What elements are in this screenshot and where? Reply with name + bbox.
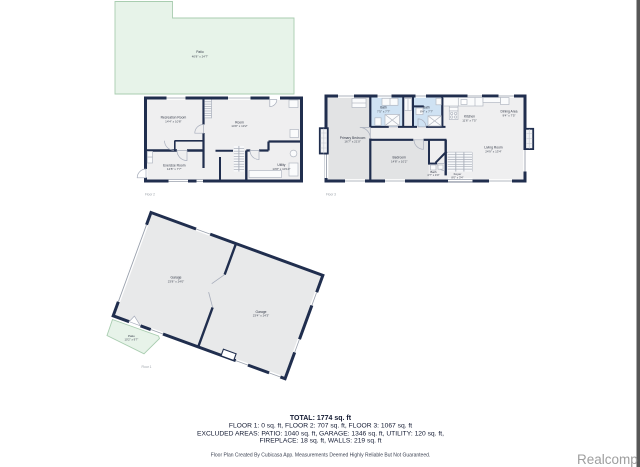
svg-text:23'4" x 24'3": 23'4" x 24'3" <box>253 314 269 318</box>
svg-text:4'7" x 4'0": 4'7" x 4'0" <box>427 173 439 177</box>
svg-text:EXCLUDED AREAS: PATIO: 1040 sq: EXCLUDED AREAS: PATIO: 1040 sq. ft, GARA… <box>197 430 444 437</box>
svg-text:13'8" x 10'10": 13'8" x 10'10" <box>272 167 290 171</box>
svg-text:Floor 3: Floor 3 <box>326 192 336 196</box>
svg-text:FIREPLACE: 18 sq. ft, WALLS: 2: FIREPLACE: 18 sq. ft, WALLS: 219 sq. ft <box>259 438 381 445</box>
svg-text:24'9" x 13'4": 24'9" x 13'4" <box>485 149 501 153</box>
svg-text:8'4" x 7'7": 8'4" x 7'7" <box>420 109 433 113</box>
svg-text:40'8" x 24'7": 40'8" x 24'7" <box>192 54 208 58</box>
svg-text:11'6" x 7'5": 11'6" x 7'5" <box>462 118 477 122</box>
svg-text:23'8" x 24'0": 23'8" x 24'0" <box>168 279 184 283</box>
svg-text:Floor 2: Floor 2 <box>145 192 155 196</box>
svg-text:Realcomp: Realcomp <box>577 452 638 467</box>
svg-text:10'2" x 9'7": 10'2" x 9'7" <box>125 337 139 341</box>
svg-text:FLOOR 1: 0 sq. ft, FLOOR 2: 70: FLOOR 1: 0 sq. ft, FLOOR 2: 707 sq. ft, … <box>229 423 412 430</box>
svg-text:TOTAL: 1774 sq. ft: TOTAL: 1774 sq. ft <box>290 415 352 422</box>
svg-text:14'8" x 7'7": 14'8" x 7'7" <box>167 167 182 171</box>
svg-text:14'8" x 10'2": 14'8" x 10'2" <box>391 159 407 163</box>
svg-text:14'8" x 13'2": 14'8" x 13'2" <box>231 124 247 128</box>
svg-text:16'7" x 21'0": 16'7" x 21'0" <box>344 140 360 144</box>
svg-text:Floor 1: Floor 1 <box>142 365 152 369</box>
svg-text:Floor Plan Created By Cubicasa: Floor Plan Created By Cubicasa App. Meas… <box>211 452 431 458</box>
svg-text:8'0" x 3'4": 8'0" x 3'4" <box>451 175 463 179</box>
svg-text:14'4" x 10'8": 14'4" x 10'8" <box>165 119 181 123</box>
svg-text:7'5" x 7'7": 7'5" x 7'7" <box>377 109 390 113</box>
svg-text:9'4" x 7'5": 9'4" x 7'5" <box>502 113 515 117</box>
